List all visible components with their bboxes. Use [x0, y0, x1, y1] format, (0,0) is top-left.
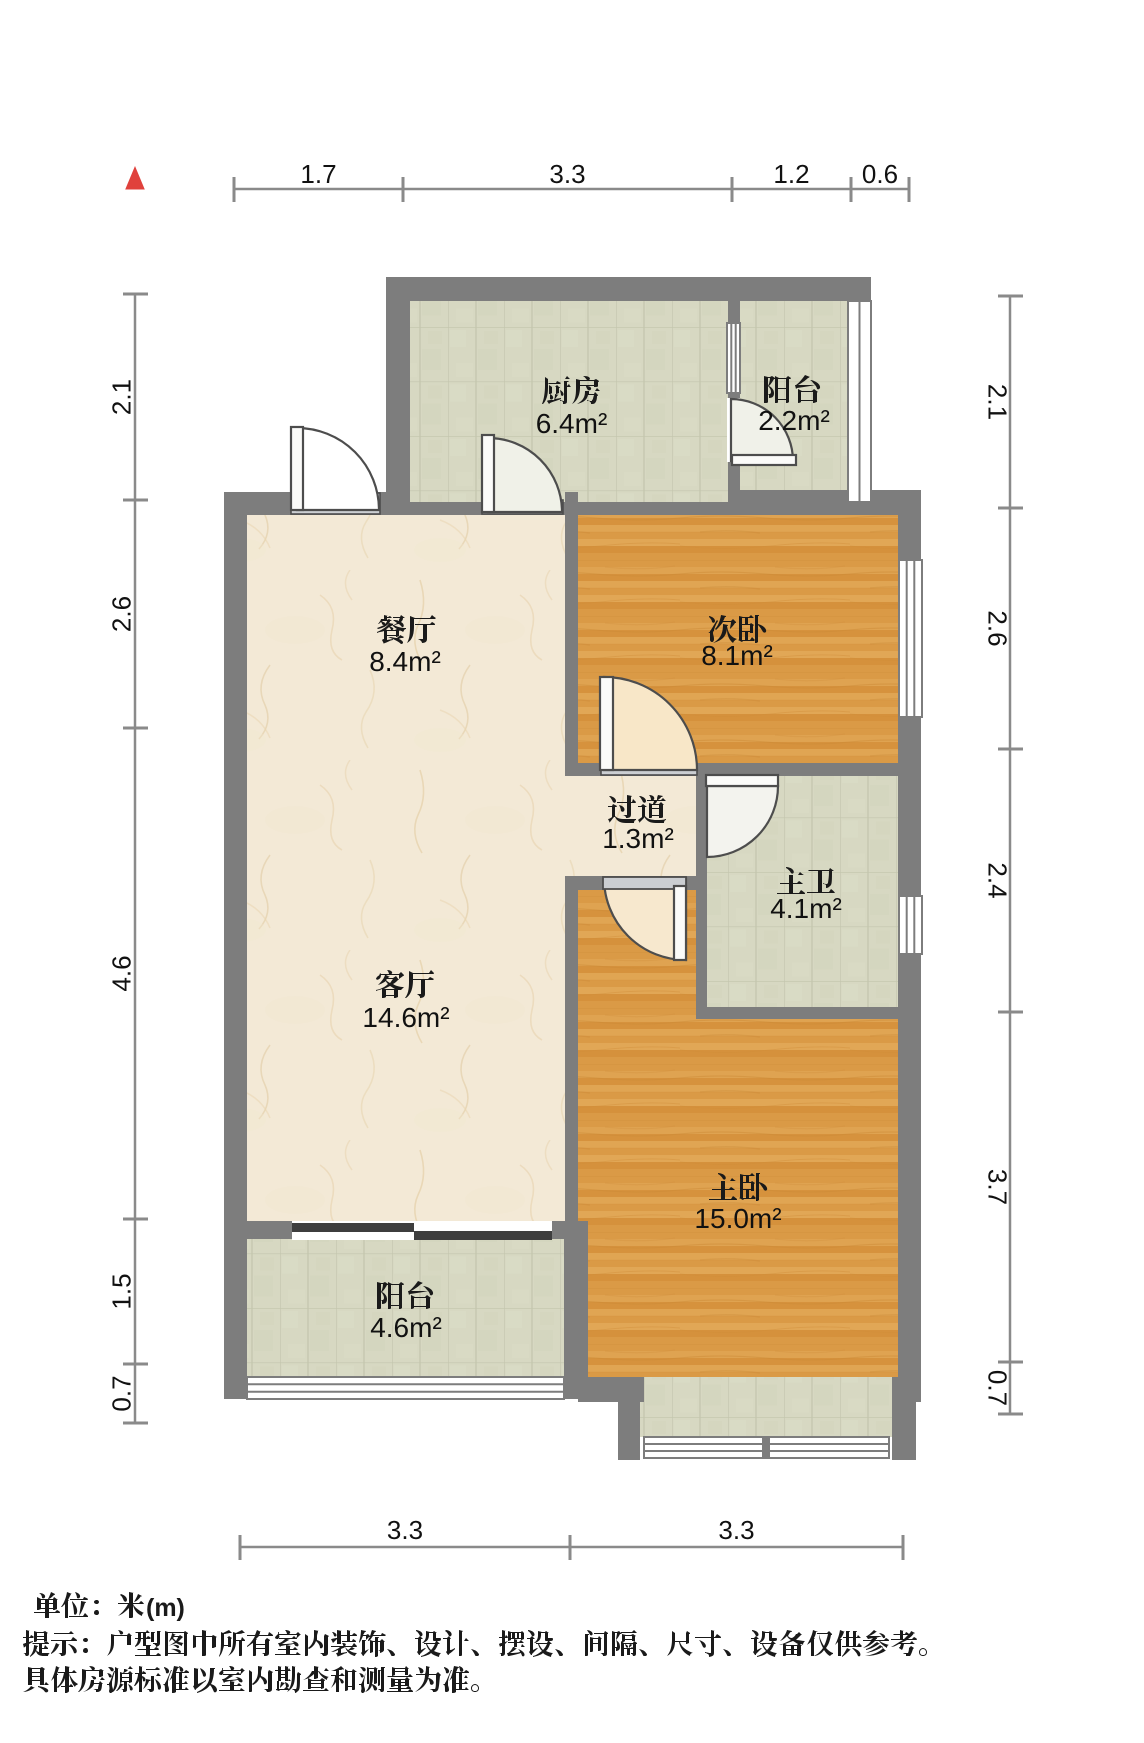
svg-text:2.1: 2.1 [983, 384, 1013, 420]
svg-text:0.7: 0.7 [983, 1370, 1013, 1406]
svg-text:4.6: 4.6 [107, 955, 137, 991]
svg-text:1.3m²: 1.3m² [602, 823, 674, 854]
svg-text:8.1m²: 8.1m² [701, 640, 773, 671]
svg-text:4.1m²: 4.1m² [770, 893, 842, 924]
svg-text:3.7: 3.7 [983, 1169, 1013, 1205]
svg-text:15.0m²: 15.0m² [694, 1203, 781, 1234]
svg-text:6.4m²: 6.4m² [536, 408, 608, 439]
svg-text:3.3: 3.3 [718, 1515, 754, 1545]
svg-text:3.3: 3.3 [549, 159, 585, 189]
svg-text:4.6m²: 4.6m² [370, 1312, 442, 1343]
svg-text:2.1: 2.1 [107, 379, 137, 415]
svg-text:2.6: 2.6 [983, 610, 1013, 646]
svg-text:0.7: 0.7 [107, 1375, 137, 1411]
svg-text:3.3: 3.3 [387, 1515, 423, 1545]
svg-text:(m): (m) [146, 1594, 185, 1622]
svg-text:0.6: 0.6 [862, 159, 898, 189]
svg-text:1.5: 1.5 [107, 1273, 137, 1309]
svg-text:1.2: 1.2 [773, 159, 809, 189]
svg-text:1.7: 1.7 [300, 159, 336, 189]
svg-text:2.6: 2.6 [107, 596, 137, 632]
svg-text:2.4: 2.4 [983, 862, 1013, 898]
svg-text:8.4m²: 8.4m² [369, 646, 441, 677]
svg-text:2.2m²: 2.2m² [758, 405, 830, 436]
svg-text:14.6m²: 14.6m² [362, 1002, 449, 1033]
